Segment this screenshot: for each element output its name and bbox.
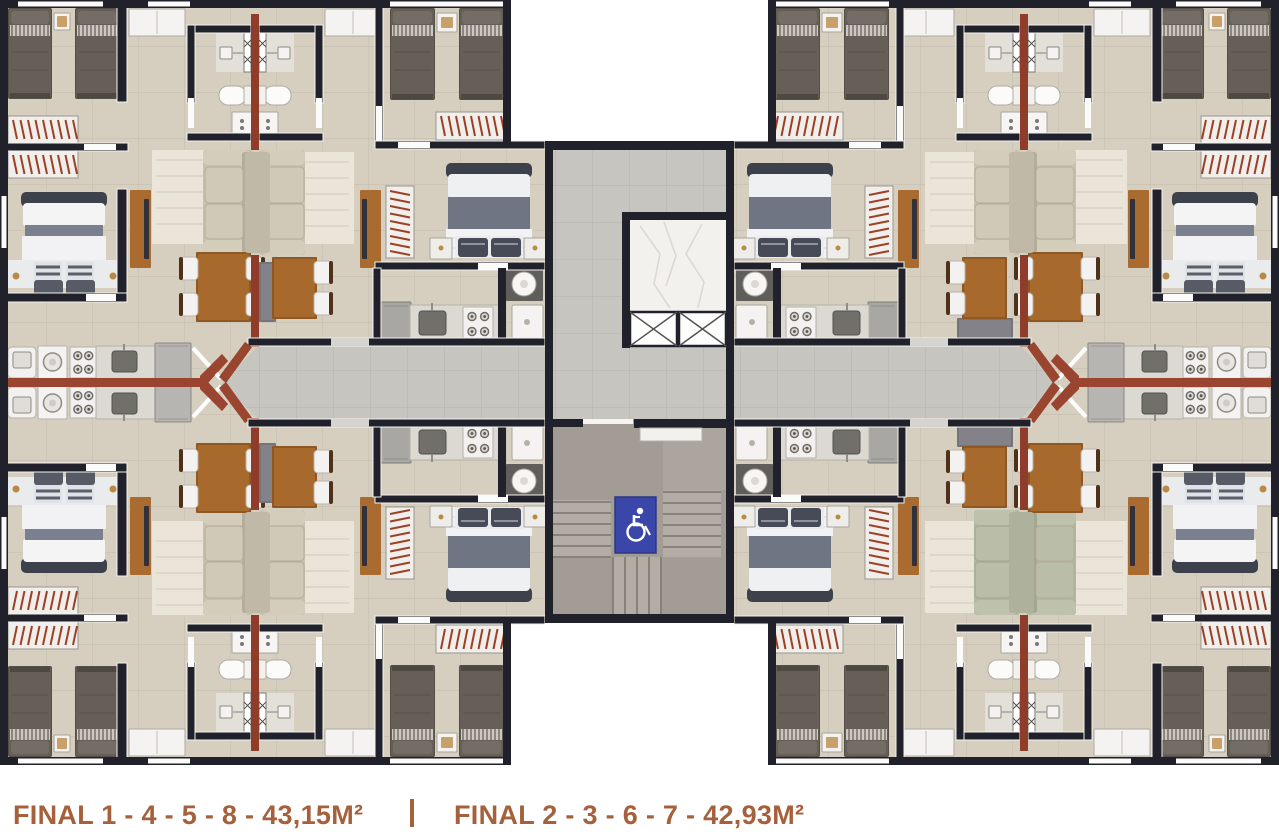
svg-text:FINAL 1 - 4 - 5 - 8 - 43,15M²: FINAL 1 - 4 - 5 - 8 - 43,15M² <box>13 800 363 830</box>
svg-text:FINAL 2 - 3 - 6 - 7 - 42,93M²: FINAL 2 - 3 - 6 - 7 - 42,93M² <box>454 800 804 830</box>
